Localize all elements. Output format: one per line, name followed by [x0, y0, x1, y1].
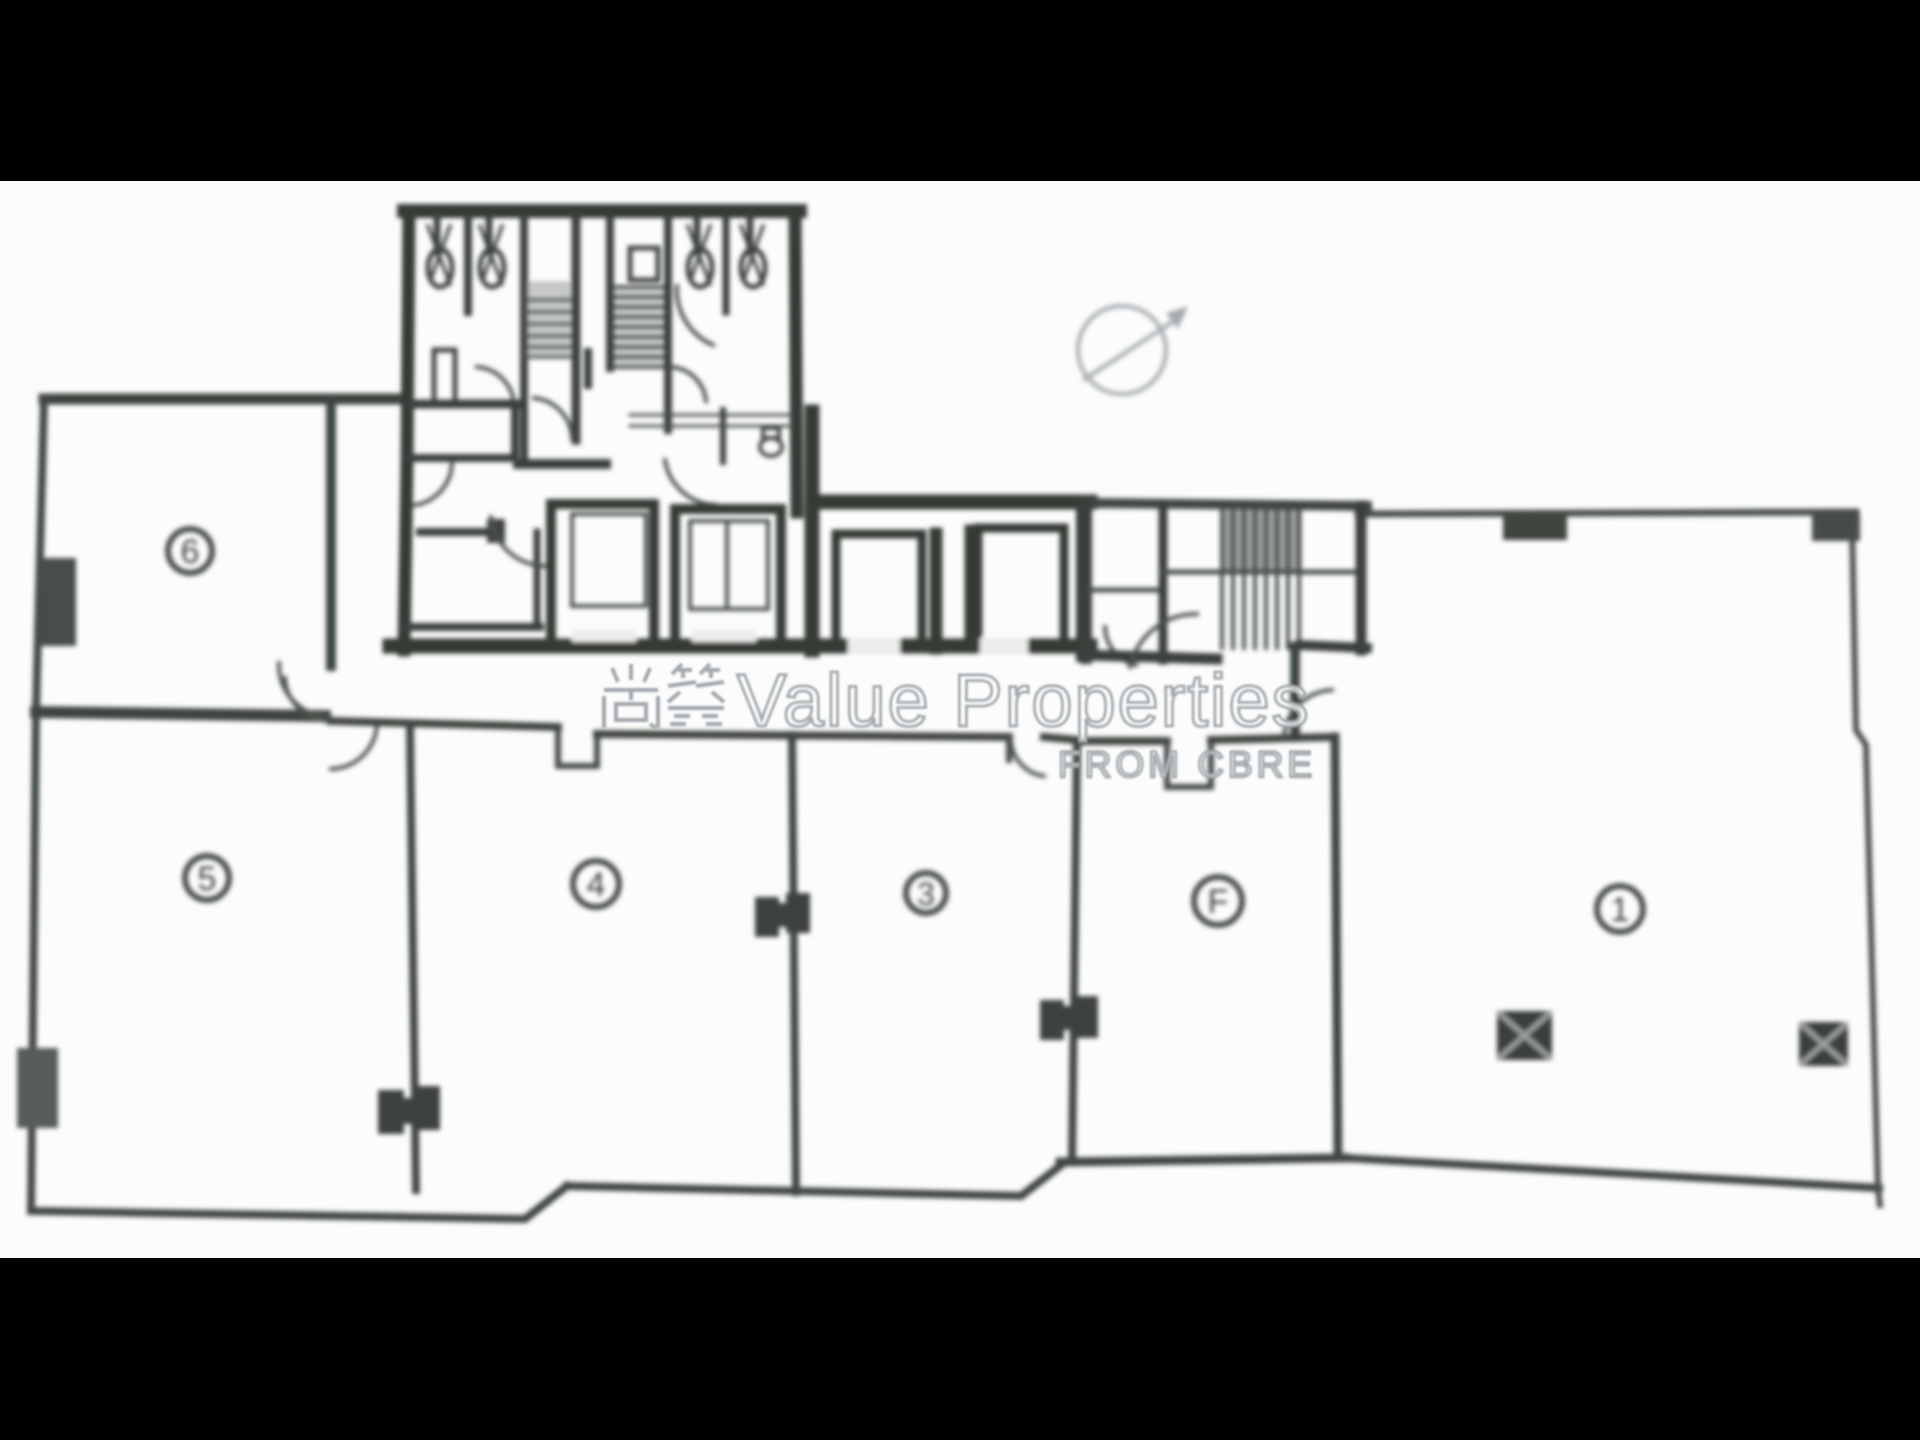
svg-text:F: F — [1208, 883, 1229, 921]
svg-text:FROM CBRE: FROM CBRE — [1058, 744, 1316, 785]
svg-text:1: 1 — [1611, 891, 1630, 929]
svg-text:3: 3 — [917, 876, 935, 912]
svg-text:Value Properties: Value Properties — [737, 659, 1311, 742]
svg-text:5: 5 — [198, 860, 217, 898]
svg-text:4: 4 — [587, 866, 606, 904]
svg-text:6: 6 — [181, 533, 200, 571]
